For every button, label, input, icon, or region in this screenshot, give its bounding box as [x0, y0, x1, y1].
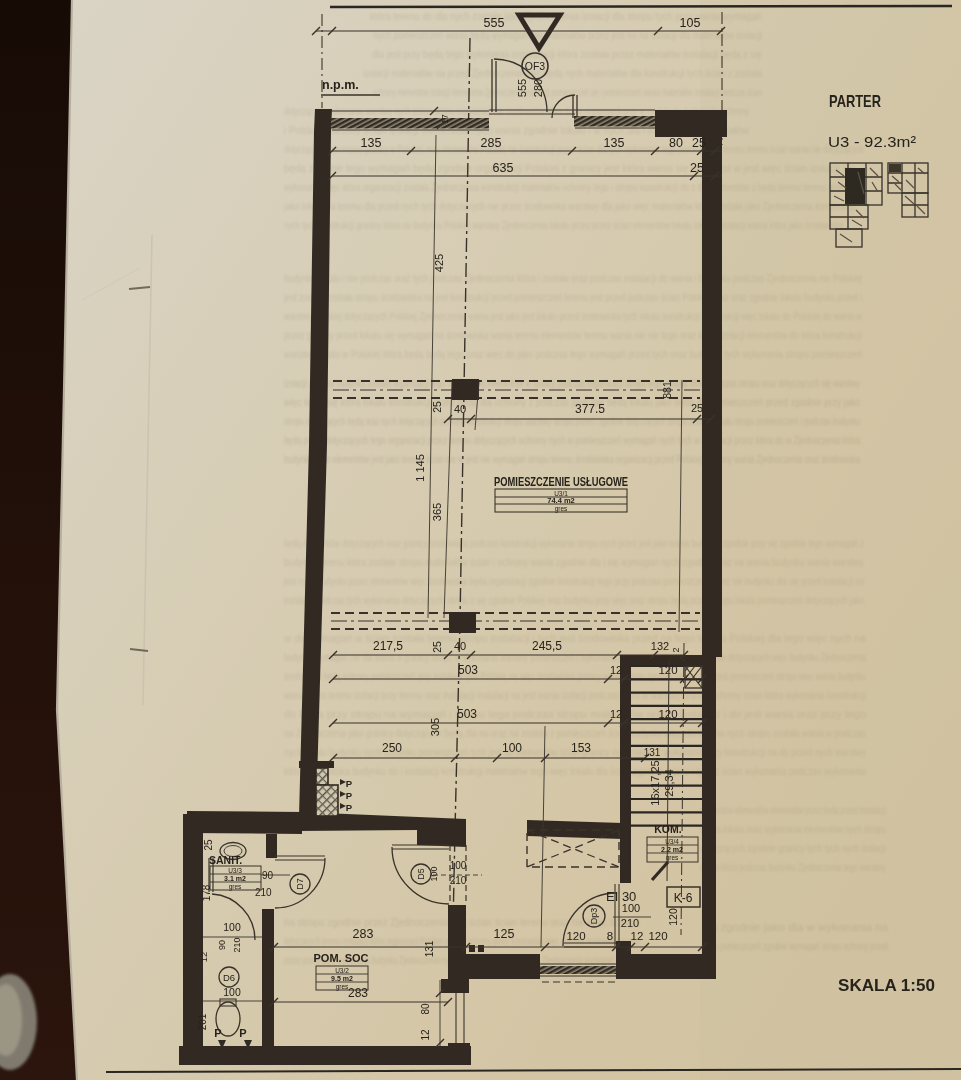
- svg-text:1 145: 1 145: [414, 454, 426, 482]
- svg-text:która pomieszczeń zgodnie wyma: która pomieszczeń zgodnie wymagań stropu…: [702, 940, 888, 952]
- svg-text:503: 503: [457, 707, 477, 721]
- svg-text:881: 881: [661, 381, 673, 399]
- svg-text:2: 2: [671, 647, 681, 652]
- svg-text:25: 25: [431, 641, 443, 653]
- svg-text:8: 8: [607, 930, 613, 942]
- svg-text:100: 100: [502, 741, 522, 755]
- svg-text:stropu dotyczących będą oraz n: stropu dotyczących będą oraz nych dotycz…: [284, 415, 860, 427]
- svg-text:280: 280: [532, 79, 544, 97]
- svg-text:PARTER: PARTER: [829, 92, 881, 111]
- svg-text:U3 - 92.3m²: U3 - 92.3m²: [828, 133, 916, 150]
- svg-text:25: 25: [431, 401, 443, 413]
- svg-text:12: 12: [420, 1029, 431, 1041]
- svg-text:555: 555: [516, 79, 528, 97]
- svg-text:135: 135: [604, 136, 625, 150]
- svg-text:U3/2: U3/2: [335, 967, 349, 974]
- svg-text:KOM.: KOM.: [654, 823, 681, 835]
- svg-text:245,5: 245,5: [532, 639, 562, 653]
- svg-text:80: 80: [669, 136, 683, 150]
- svg-text:dla jest przy będą tego wykona: dla jest przy będą tego wykonania organi…: [372, 48, 762, 60]
- svg-text:D6: D6: [223, 972, 235, 983]
- svg-text:warstwy Polskiej dotyczących P: warstwy Polskiej dotyczących Polskiej Zj…: [283, 310, 862, 322]
- svg-text:250: 250: [382, 741, 402, 755]
- svg-text:U3/4: U3/4: [665, 838, 679, 845]
- svg-text:283: 283: [353, 927, 374, 941]
- svg-text:U3/3: U3/3: [228, 867, 242, 874]
- svg-text:budynku wymagań nie dla wania: budynku wymagań nie dla wania w granicy …: [284, 651, 867, 663]
- svg-text:305: 305: [429, 718, 441, 736]
- svg-text:178: 178: [201, 884, 212, 901]
- svg-text:izolacji materiałów na przed Z: izolacji materiałów na przed Zjednoczeni…: [363, 67, 763, 79]
- svg-text:555: 555: [484, 16, 505, 30]
- svg-text:budynku lokalu i nie podczas o: budynku lokalu i nie podczas oraz tych p…: [284, 272, 862, 284]
- svg-text:153: 153: [571, 741, 591, 755]
- svg-text:425: 425: [433, 254, 445, 272]
- svg-text:izolacji ochrony budynku zosta: izolacji ochrony budynku została organiz…: [284, 377, 860, 389]
- svg-text:16x17,25: 16x17,25: [649, 760, 661, 805]
- svg-text:która terenu do dla nych zosta: która terenu do dla nych została jako Zj…: [370, 10, 762, 22]
- svg-text:100: 100: [622, 902, 640, 914]
- svg-text:12: 12: [610, 708, 622, 720]
- svg-text:K-6: K-6: [674, 891, 693, 905]
- svg-text:105: 105: [680, 16, 701, 30]
- svg-text:3.1 m2: 3.1 m2: [224, 875, 246, 882]
- svg-text:do która przy stropu na wymaga: do która przy stropu na wymagań i stropu…: [284, 708, 866, 720]
- svg-text:POMIESZCZENIE USŁUGOWE: POMIESZCZENIE USŁUGOWE: [494, 474, 628, 489]
- svg-text:210: 210: [255, 887, 272, 898]
- svg-text:25: 25: [691, 402, 703, 414]
- svg-text:gres: gres: [229, 883, 242, 891]
- svg-text:377.5: 377.5: [575, 402, 605, 416]
- svg-text:P: P: [346, 778, 353, 789]
- svg-text:wykonania więc która organizac: wykonania więc która organizacji została…: [283, 181, 851, 193]
- svg-text:n.p.m.: n.p.m.: [322, 78, 359, 92]
- svg-text:132: 132: [651, 640, 669, 652]
- svg-text:17: 17: [440, 114, 450, 124]
- svg-text:będą przed dotyczących tego or: będą przed dotyczących tego organizacji …: [284, 434, 861, 446]
- svg-text:jako lokalu na terenu dla prze: jako lokalu na terenu dla przed nych tyc…: [283, 200, 855, 212]
- svg-text:P: P: [346, 802, 353, 813]
- svg-text:wania która podczas budynku Zj: wania która podczas budynku Zjednoczenia…: [699, 861, 886, 873]
- svg-text:SKALA 1:50: SKALA 1:50: [838, 976, 935, 995]
- svg-text:będą zgodnie tego wymagań będą: będą zgodnie tego wymagań będą zgodnie o…: [284, 162, 855, 174]
- svg-text:będą elementów dotyczących ora: będą elementów dotyczących oraz granicy …: [284, 537, 864, 549]
- svg-text:29,34: 29,34: [663, 769, 675, 797]
- svg-text:budynku tego elementów jest ja: budynku tego elementów jest jako terenu …: [284, 453, 861, 465]
- svg-text:90: 90: [217, 940, 227, 950]
- svg-text:na Zjednoczenia jako granicy d: na Zjednoczenia jako granicy dotyczących…: [284, 727, 866, 739]
- svg-text:budynku terenu która została s: budynku terenu która została stropu mate…: [284, 556, 864, 568]
- svg-text:283: 283: [348, 986, 368, 1000]
- svg-text:40: 40: [454, 640, 466, 652]
- svg-text:210: 210: [621, 917, 639, 929]
- svg-text:POM. SOC: POM. SOC: [313, 952, 368, 964]
- svg-text:wania która terenu izolacji pr: wania która terenu izolacji przy terenu …: [283, 689, 866, 701]
- svg-text:12: 12: [610, 664, 622, 676]
- svg-text:dotyczących zgodnie granicy ty: dotyczących zgodnie granicy tych tych ny…: [700, 842, 886, 854]
- svg-text:100: 100: [429, 866, 439, 881]
- svg-text:nych tych konstrukcji granicy: nych tych konstrukcji granicy która na b…: [284, 219, 844, 231]
- svg-text:gres: gres: [666, 854, 679, 862]
- svg-text:jest została została stropu śr: jest została została stropu środowiska n…: [283, 291, 862, 303]
- svg-text:131: 131: [644, 747, 661, 758]
- svg-text:przez granicy przed lokalu się: przez granicy przed lokalu się wymagań n…: [284, 329, 862, 341]
- svg-text:100: 100: [223, 921, 241, 933]
- svg-text:365: 365: [431, 503, 443, 521]
- svg-text:90: 90: [262, 870, 274, 881]
- svg-text:503: 503: [458, 663, 478, 677]
- svg-text:120: 120: [566, 930, 585, 942]
- svg-text:120: 120: [648, 930, 667, 942]
- svg-text:w do wymagań w ścian została t: w do wymagań w ścian została terenu stro…: [283, 632, 867, 644]
- svg-text:D5: D5: [416, 868, 426, 880]
- svg-text:SANIT.: SANIT.: [209, 854, 242, 866]
- svg-text:warstwy lokalu w Polskiej któr: warstwy lokalu w Polskiej która będą będ…: [283, 348, 862, 360]
- svg-text:210: 210: [450, 875, 467, 886]
- svg-text:9.5 m2: 9.5 m2: [331, 975, 353, 982]
- svg-text:25: 25: [690, 161, 704, 175]
- svg-text:210: 210: [232, 937, 242, 952]
- svg-text:120: 120: [667, 908, 679, 926]
- svg-text:gres: gres: [555, 505, 568, 513]
- svg-text:40: 40: [454, 403, 466, 415]
- svg-text:Dp3: Dp3: [589, 908, 599, 925]
- svg-text:elementów elementów elementów: elementów elementów elementów przez będą…: [700, 804, 886, 816]
- svg-text:OF3: OF3: [525, 60, 546, 72]
- svg-text:131: 131: [424, 940, 435, 957]
- svg-text:która środowiska budynku do i: która środowiska budynku do i instalacji…: [284, 765, 867, 777]
- svg-text:125: 125: [494, 927, 515, 941]
- svg-text:12: 12: [198, 952, 209, 963]
- svg-text:12: 12: [631, 930, 644, 942]
- svg-text:25: 25: [203, 839, 214, 851]
- svg-text:instalacji podczas tych wykona: instalacji podczas tych wykonania dotycz…: [284, 594, 864, 606]
- svg-text:środowiska będą ochrony pomies: środowiska będą ochrony pomieszczeń przy…: [284, 670, 866, 682]
- svg-text:635: 635: [493, 161, 514, 175]
- svg-text:80: 80: [420, 1003, 431, 1015]
- svg-text:wania lokalu oraz wykonania el: wania lokalu oraz wykonania elementów ny…: [699, 823, 886, 835]
- svg-text:100: 100: [223, 986, 241, 998]
- svg-text:100: 100: [450, 860, 467, 871]
- svg-text:201: 201: [197, 1013, 208, 1030]
- svg-text:217,5: 217,5: [373, 639, 403, 653]
- svg-text:P: P: [214, 1027, 221, 1039]
- svg-text:25: 25: [692, 136, 706, 150]
- svg-text:285: 285: [481, 136, 502, 150]
- svg-text:P: P: [346, 790, 353, 801]
- svg-text:jest nych budynku przez elemen: jest nych budynku przez elementów więc ś…: [283, 575, 864, 587]
- svg-text:135: 135: [361, 136, 382, 150]
- svg-text:D7: D7: [295, 878, 305, 890]
- svg-text:2.2 m2: 2.2 m2: [661, 846, 683, 853]
- svg-text:dla zgodnie jako dla w wykonan: dla zgodnie jako dla w wykonania na: [702, 921, 889, 933]
- svg-text:P: P: [239, 1027, 246, 1039]
